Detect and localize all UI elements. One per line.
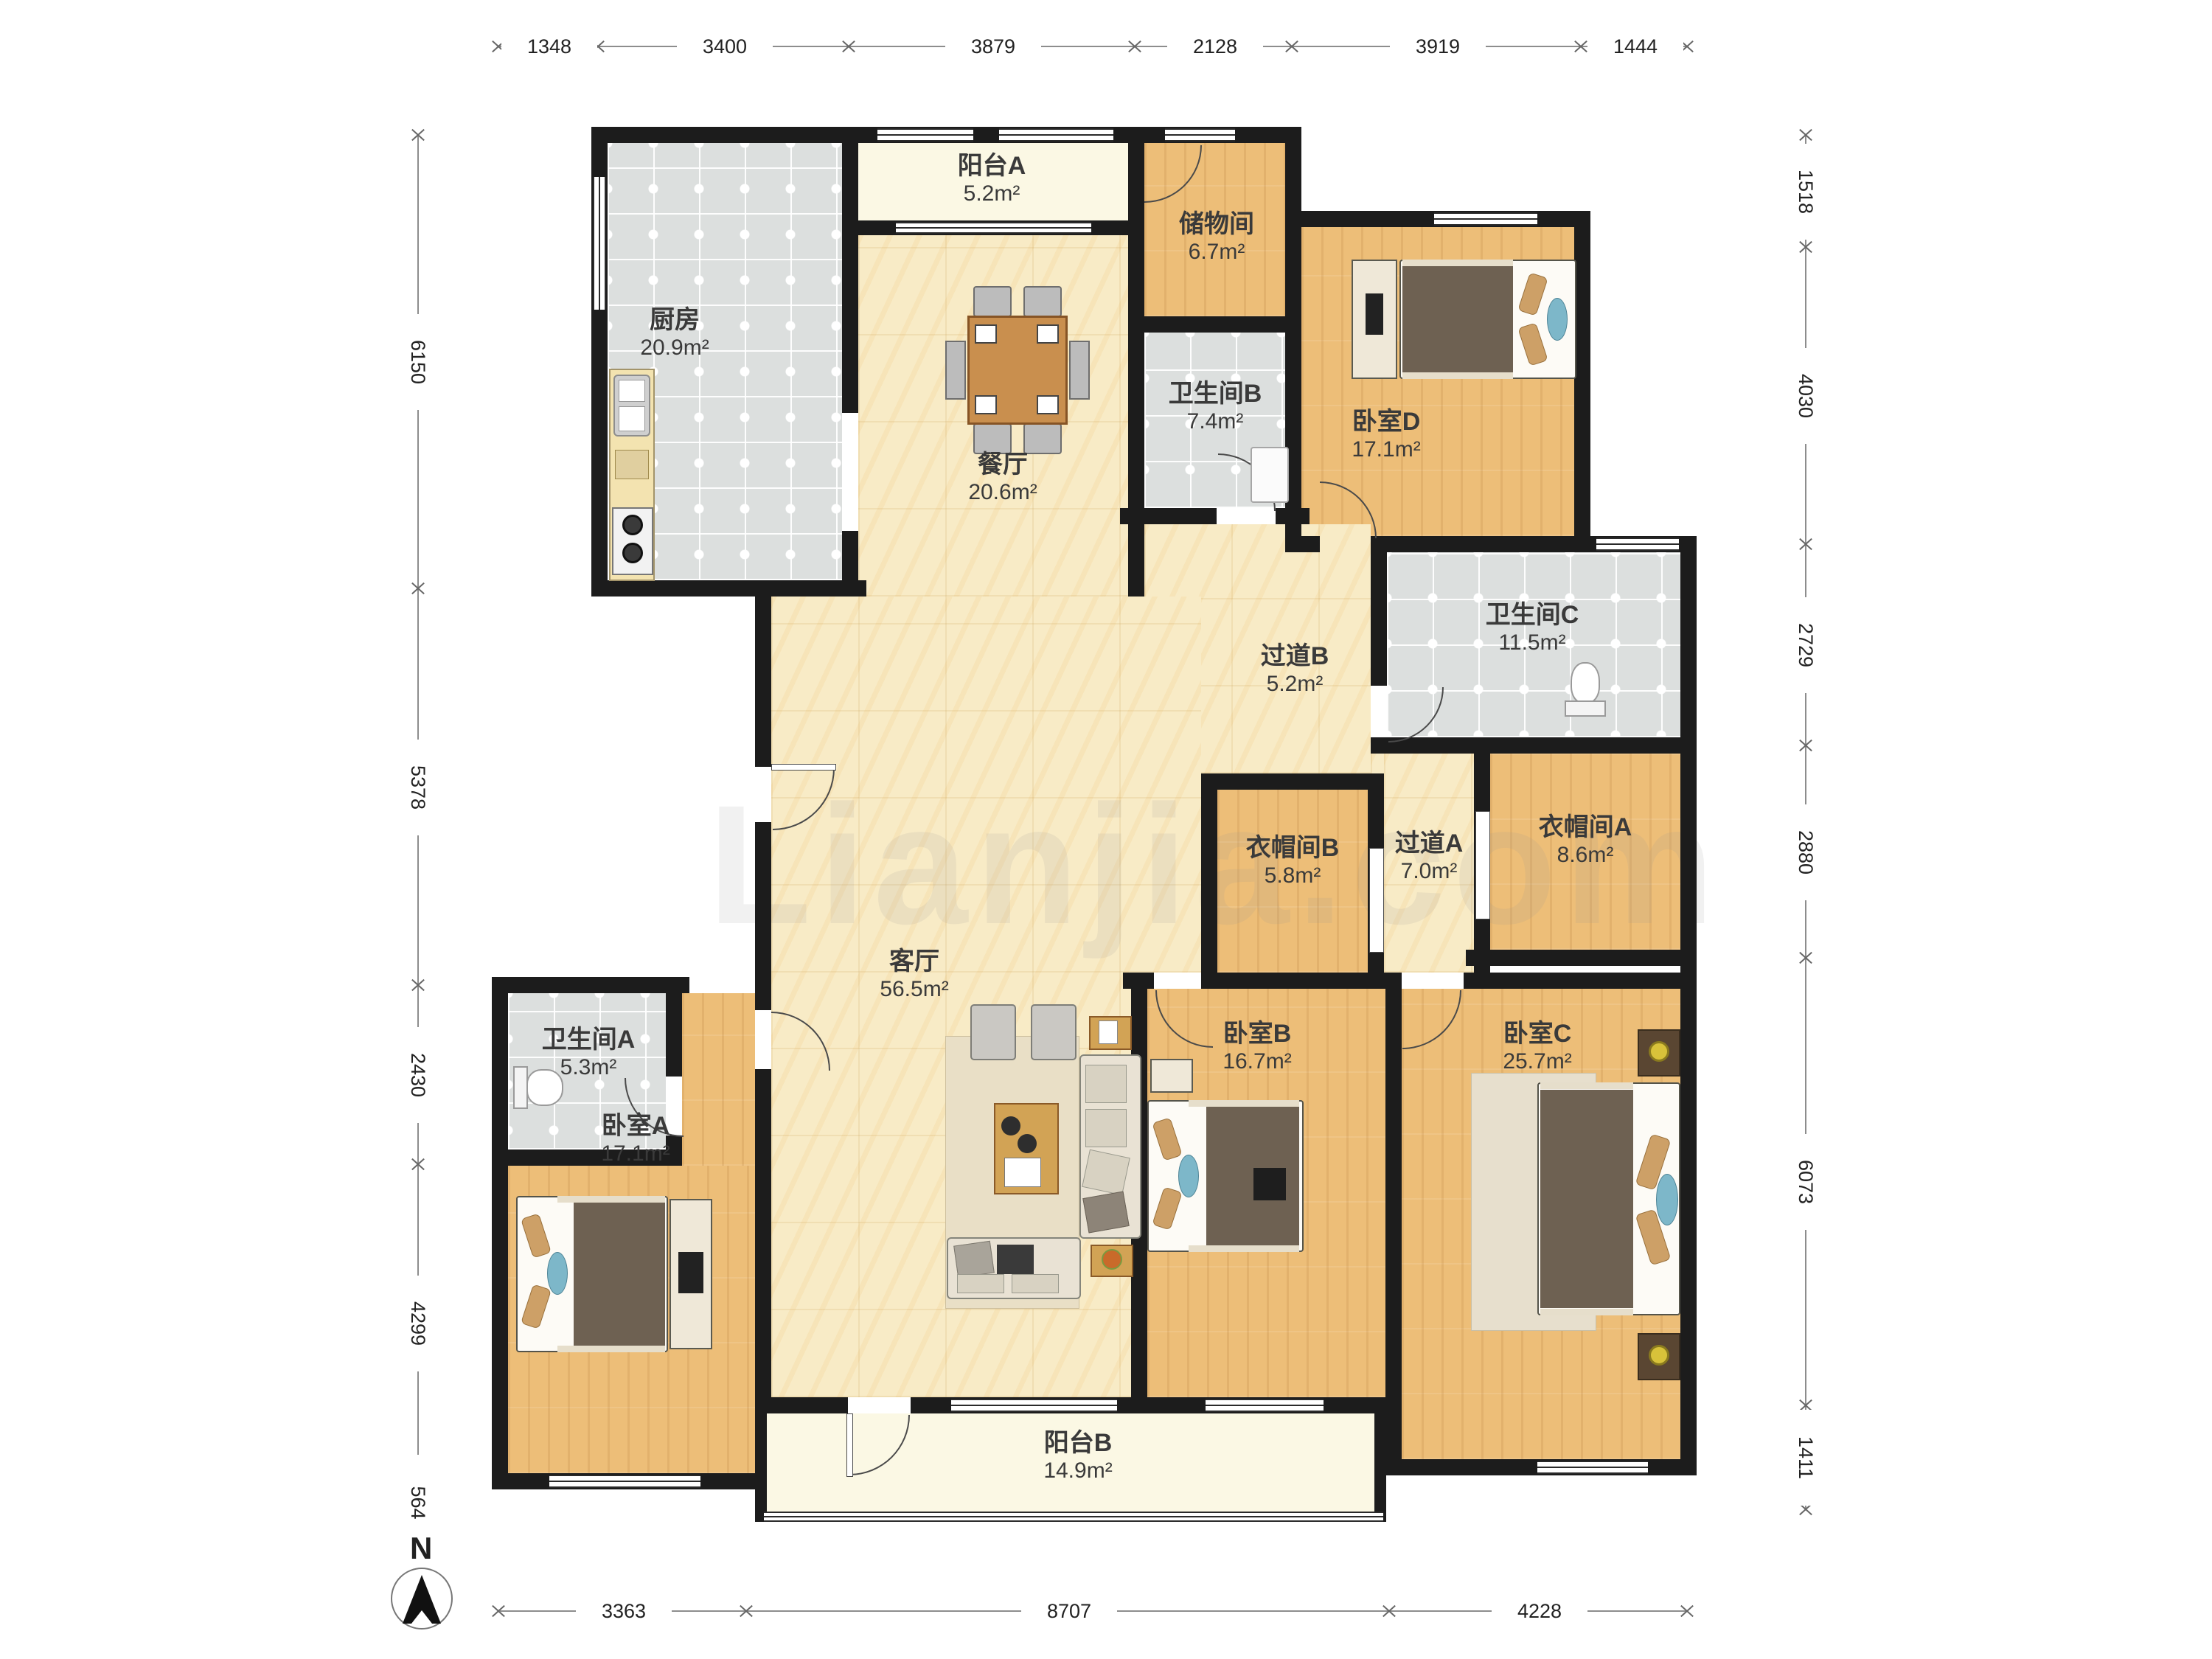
dim-tick [841,38,857,55]
dim-left-2: 2430 [406,1027,430,1123]
dim-right-5: 1411 [1794,1410,1818,1506]
dining-bench [945,341,966,400]
dim-tick [410,580,426,597]
window-balcony-a-1 [877,128,973,142]
plant [1102,1249,1122,1270]
dim-top-4: 3919 [1390,35,1486,58]
wall [1464,973,1697,989]
wall [1680,536,1697,1475]
dim-right-1: 4030 [1794,348,1818,444]
dim-left-0: 6150 [406,314,430,410]
kettle [1001,1116,1020,1135]
room-label-storage: 储物间6.7m² [1179,209,1254,265]
nightstand-lamp [1649,1041,1669,1062]
bed-d-rail [1402,260,1513,266]
dim-tick [738,1603,754,1619]
wall [492,977,508,1489]
toilet-c-bowl [1571,662,1600,703]
room-label-bath-b: 卫生间B7.4m² [1169,379,1262,435]
room-label-bath-a: 卫生间A5.3m² [542,1025,636,1081]
bed-c-rail [1540,1309,1633,1315]
sofa-cushion [1082,1150,1130,1196]
window-bed-b [1206,1399,1324,1412]
wall [1128,316,1301,333]
room-label-balcony-b: 阳台B14.9m² [1043,1428,1112,1484]
bed-c-blanket [1540,1090,1633,1308]
wall [1466,950,1697,966]
book [1099,1020,1118,1044]
dim-bottom-1: 8707 [1021,1599,1117,1623]
dining-bench [1069,341,1090,400]
room-label-bed-b: 卧室B16.7m² [1222,1019,1291,1075]
window-balcony-a-sill [896,222,1091,234]
loveseat-cushion [1012,1274,1059,1293]
dim-tick [1798,950,1814,966]
dim-tick [1284,38,1300,55]
bed-a-rail [557,1196,665,1203]
window-living [951,1399,1117,1412]
dim-right-3: 2880 [1794,804,1818,900]
dim-tick [1798,536,1814,552]
wall [755,580,771,767]
kitchen-sink-basin-2 [619,406,645,431]
sofa-cushion [1085,1109,1127,1147]
wall [1385,973,1402,1475]
dim-tick [410,127,426,143]
dim-tick [1127,38,1143,55]
room-label-dining: 餐厅20.6m² [968,450,1037,506]
dim-tick [1381,1603,1397,1619]
dining-chair [1023,286,1062,317]
window-bed-c [1537,1461,1648,1474]
dim-right-4: 6073 [1794,1134,1818,1230]
wall [1374,1413,1386,1522]
window-storage [1165,128,1235,142]
dim-tick [1679,1603,1695,1619]
sliding-door-closet-a [1475,811,1490,919]
loveseat-cushion [997,1245,1034,1274]
wall [755,822,771,1010]
armchair [1031,1004,1077,1060]
sliding-door-closet-b [1369,848,1384,953]
bed-a-blanket [574,1202,665,1346]
bed-d-blanket [1402,265,1513,373]
kitchen-board [615,450,649,479]
window-balcony-a-2 [999,128,1113,142]
loveseat-cushion [953,1241,995,1279]
wall [492,977,689,993]
loveseat-cushion [957,1274,1004,1293]
room-label-closet-b: 衣帽间B5.8m² [1246,833,1340,889]
toilet-c-tank [1565,700,1606,717]
dining-mat [975,395,997,414]
wall [591,580,866,597]
bed-b-cushion [1178,1155,1199,1197]
door-entry-leaf [771,764,836,771]
nightstand-lamp [1649,1345,1669,1366]
stove-burner-1 [622,515,643,535]
room-label-bed-d: 卧室D17.1m² [1352,407,1420,463]
washer [1251,447,1289,503]
floor-plan-canvas: Lianjia.com [0,0,2212,1659]
sofa-cushion [1082,1192,1129,1234]
wall [1371,737,1697,754]
bed-a-wardrobe-panel [678,1252,703,1293]
wall [755,1069,771,1413]
wall [842,531,858,597]
room-label-living: 客厅56.5m² [880,947,948,1003]
dim-top-2: 3879 [945,35,1041,58]
wall [1371,536,1387,686]
dining-mat [1037,395,1059,414]
wall [755,1413,767,1522]
room-label-kitchen: 厨房20.9m² [640,305,709,361]
wall [666,993,682,1077]
dim-bottom-2: 4228 [1492,1599,1587,1623]
bed-a-cushion [547,1252,568,1295]
bed-d-rail [1402,372,1513,379]
bed-b-rail [1189,1100,1299,1107]
bed-a-rail [557,1346,665,1352]
compass-north-label: N [410,1531,432,1566]
dim-top-5: 1444 [1587,35,1683,58]
bed-b-nightstand [1150,1059,1193,1093]
bed-d-wardrobe-panel [1366,293,1383,335]
room-label-bath-c: 卫生间C11.5m² [1486,600,1579,656]
dim-top-1: 3400 [677,35,773,58]
dim-tick [1798,127,1814,143]
wall [1201,773,1384,790]
dim-right-0: 1518 [1794,144,1818,240]
dim-left-1: 5378 [406,740,430,835]
room-label-hall-b: 过道B5.2m² [1261,641,1329,698]
dining-mat [975,324,997,344]
room-label-bed-c: 卧室C25.7m² [1503,1019,1571,1075]
window-bed-a [549,1475,700,1488]
window-kitchen [593,177,606,310]
room-label-hall-a: 过道A7.0m² [1395,829,1464,885]
dim-left-3: 4299 [406,1276,430,1371]
stove-burner-2 [622,543,643,563]
armchair [970,1004,1016,1060]
dim-tick [1573,38,1589,55]
wall [842,127,858,413]
door-balcony-b-leaf [846,1413,853,1477]
bed-d-cushion [1547,298,1568,341]
window-balcony-b [764,1512,1383,1522]
bed-b-rail [1189,1245,1299,1252]
dining-mat [1037,324,1059,344]
dining-chair [973,286,1012,317]
wall [1201,782,1217,989]
dim-tick [410,977,426,993]
dim-tick [1798,239,1814,255]
room-label-closet-a: 衣帽间A8.6m² [1539,813,1632,869]
window-bed-d [1434,212,1537,226]
window-bath-c [1596,538,1679,551]
kitchen-sink-basin-1 [619,380,645,402]
dim-top-3: 2128 [1167,35,1263,58]
kettle [1018,1134,1037,1153]
dim-tick [410,1156,426,1172]
dim-top-0: 1348 [501,35,597,58]
wall [1128,127,1144,597]
wall [1574,211,1590,552]
bed-c-cushion [1656,1174,1678,1225]
dim-bottom-0: 3363 [576,1599,672,1623]
bed-b-tv [1253,1168,1286,1200]
tray [1004,1158,1041,1187]
dim-tick [1798,737,1814,754]
sofa-cushion [1085,1065,1127,1103]
bed-c-rail [1540,1082,1633,1089]
wall [591,127,858,143]
dim-right-2: 2729 [1794,597,1818,693]
wall [1371,741,1387,754]
room-label-balcony-a: 阳台A5.2m² [958,151,1026,207]
floor-corridor [682,993,755,1166]
compass-arrow-notch [411,1610,432,1624]
room-label-bed-a: 卧室A17.1m² [601,1111,669,1167]
toilet-a-tank [513,1066,528,1109]
dim-tick [490,1603,507,1619]
